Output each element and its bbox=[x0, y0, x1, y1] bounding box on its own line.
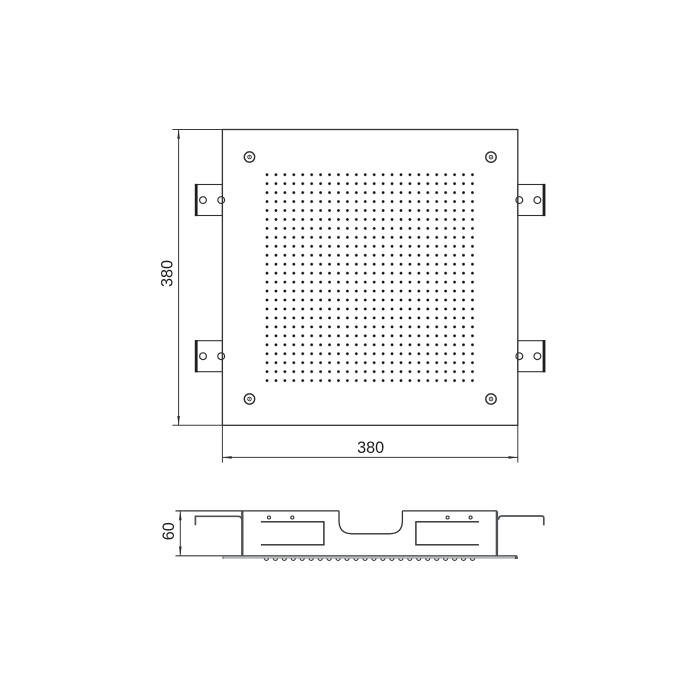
svg-text:380: 380 bbox=[357, 439, 384, 457]
svg-text:380: 380 bbox=[159, 260, 177, 287]
svg-text:60: 60 bbox=[160, 522, 178, 540]
